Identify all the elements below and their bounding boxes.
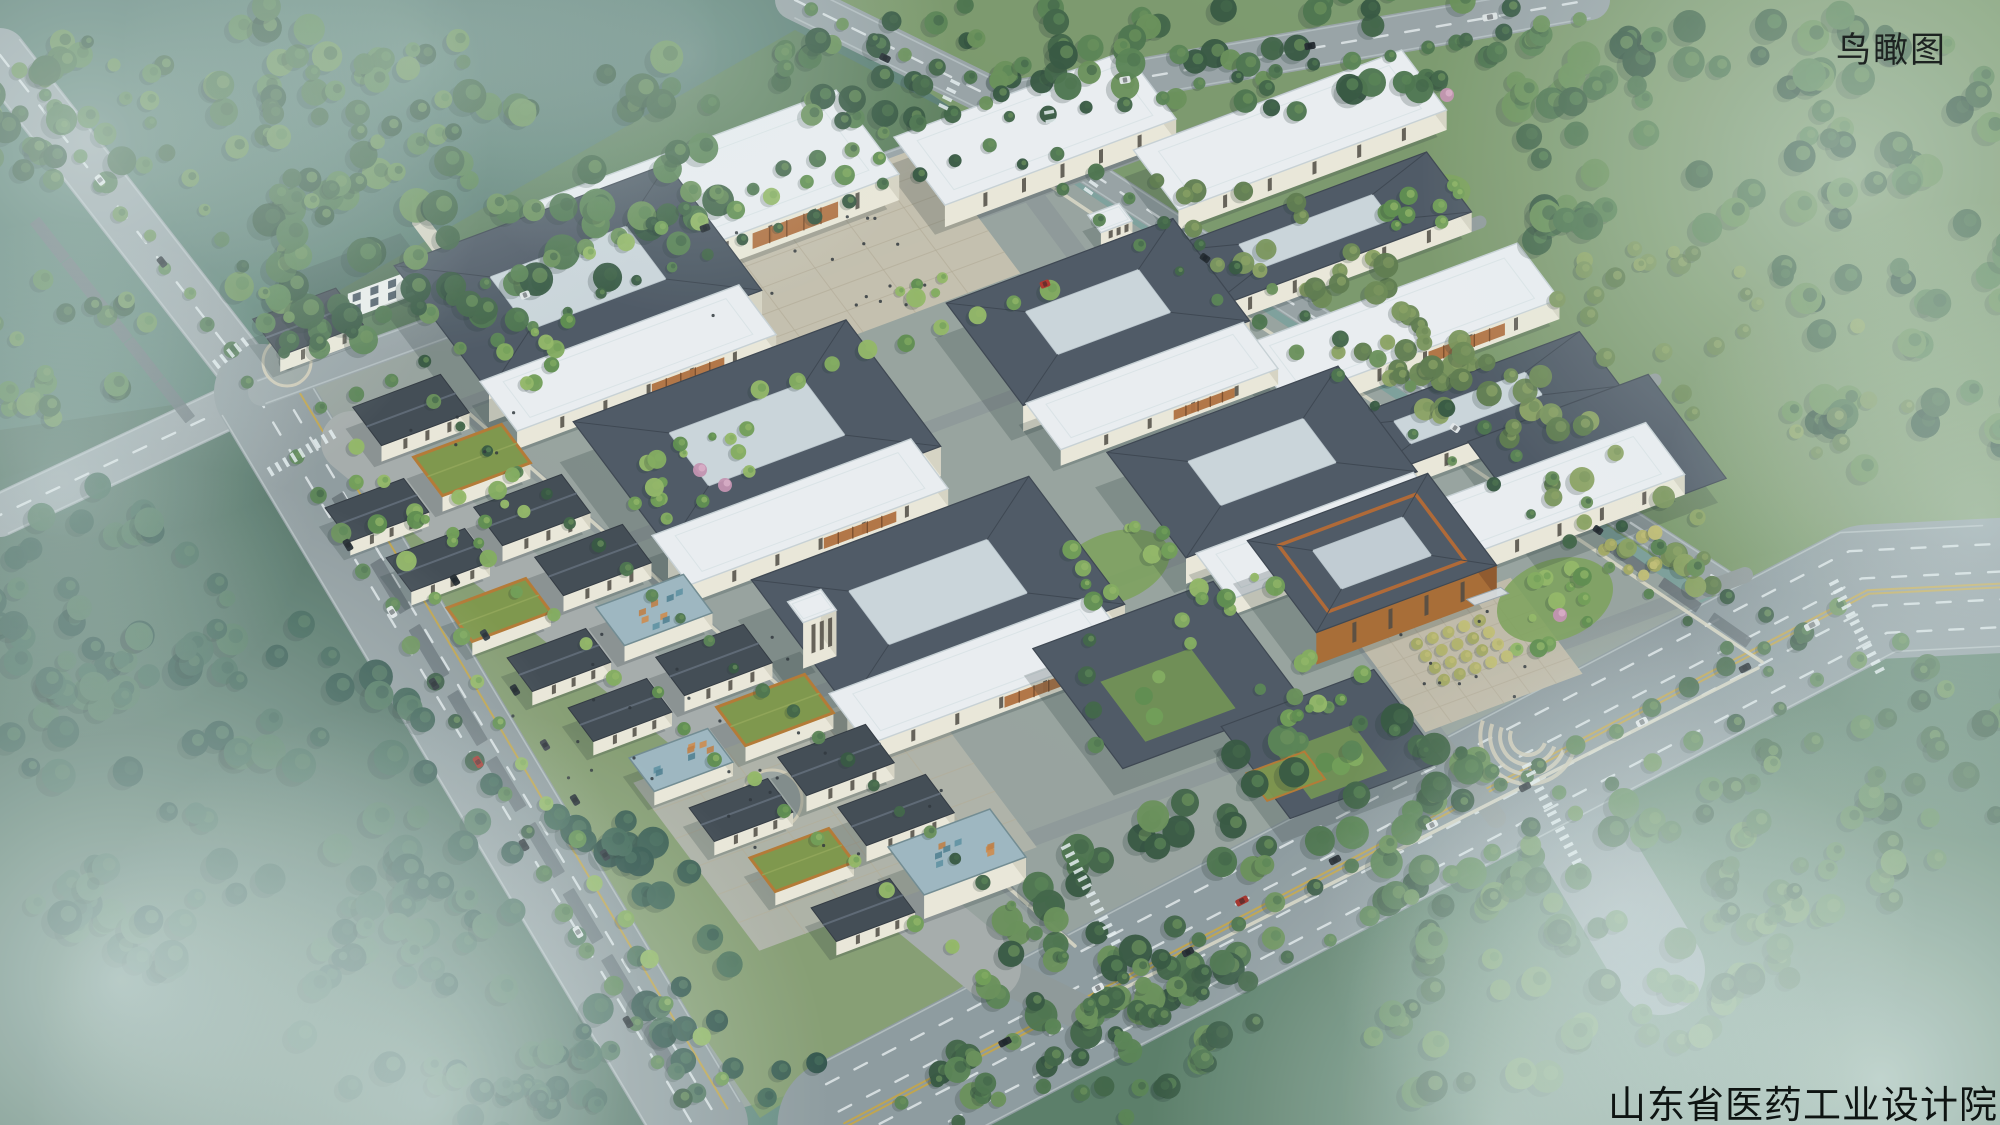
aerial-rendering-canvas: 鸟瞰图 山东省医药工业设计院 — [0, 0, 2000, 1125]
design-institute-credit: 山东省医药工业设计院 — [1608, 1074, 1998, 1125]
rendering-scene — [0, 0, 2000, 1125]
view-title: 鸟瞰图 — [1836, 22, 1947, 73]
